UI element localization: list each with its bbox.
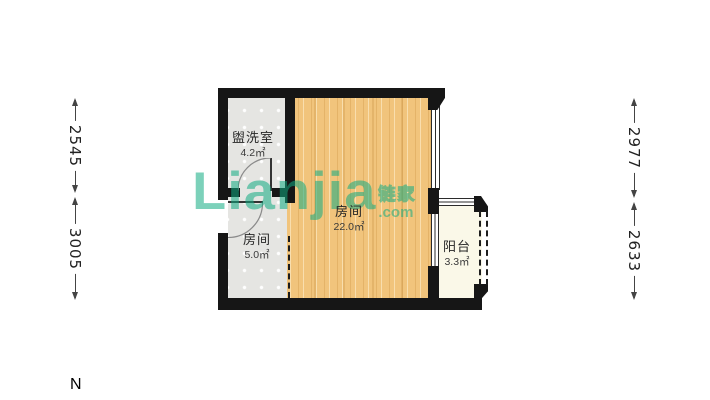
- wall-corner-top-right: [428, 88, 445, 110]
- small-room-label: 房间 5.0㎡: [224, 233, 290, 261]
- dimension-value: 2977: [624, 123, 644, 173]
- arrow-down-icon: [72, 185, 78, 193]
- wall-balcony-divider-bottom: [428, 266, 439, 298]
- wall-balcony-corner-top-right: [474, 196, 488, 212]
- dimension-right-top: 2977: [614, 98, 654, 198]
- dashed-balcony-rail-outer: [486, 211, 488, 285]
- wall-interior-vertical: [285, 88, 295, 203]
- window-balcony-top: [438, 198, 476, 206]
- wall-top: [220, 88, 438, 98]
- window-main-room-right: [431, 106, 440, 190]
- arrow-down-icon: [72, 292, 78, 300]
- dimension-right-bottom: 2633: [614, 202, 654, 300]
- main-room-floor: [285, 96, 433, 298]
- dimension-value: 2545: [65, 120, 85, 170]
- small-room-area: 5.0㎡: [224, 249, 290, 261]
- main-room-name: 房间: [299, 205, 399, 220]
- washroom-area: 4.2㎡: [220, 147, 286, 159]
- dimension-left-bottom: 3005: [55, 197, 95, 300]
- wall-washroom-bottom-left: [218, 188, 240, 197]
- washroom-door-arc: [238, 158, 271, 191]
- main-room-area: 22.0㎡: [299, 221, 399, 233]
- balcony-area: 3.3㎡: [432, 256, 482, 268]
- arrow-up-icon: [631, 202, 637, 210]
- small-room-name: 房间: [224, 233, 290, 248]
- wall-bottom: [218, 298, 482, 310]
- dimension-value: 3005: [65, 223, 85, 273]
- wall-balcony-corner-bottom-right: [474, 284, 488, 300]
- arrow-up-icon: [631, 98, 637, 106]
- arrow-up-icon: [72, 98, 78, 106]
- washroom-label: 盥洗室 4.2㎡: [220, 131, 286, 159]
- arrow-down-icon: [631, 190, 637, 198]
- balcony-label: 阳台 3.3㎡: [432, 240, 482, 268]
- balcony-name: 阳台: [432, 240, 482, 255]
- arrow-down-icon: [631, 292, 637, 300]
- wall-balcony-divider-top: [428, 188, 439, 214]
- compass-north-label: N: [70, 376, 82, 394]
- dimension-value: 2633: [624, 226, 644, 276]
- washroom-name: 盥洗室: [220, 131, 286, 146]
- floor-plan-canvas: 盥洗室 4.2㎡ 房间 22.0㎡ 房间 5.0㎡ 阳台 3.3㎡ 2545 3…: [0, 0, 710, 400]
- arrow-up-icon: [72, 197, 78, 205]
- dimension-left-top: 2545: [55, 98, 95, 193]
- main-room-label: 房间 22.0㎡: [299, 205, 399, 233]
